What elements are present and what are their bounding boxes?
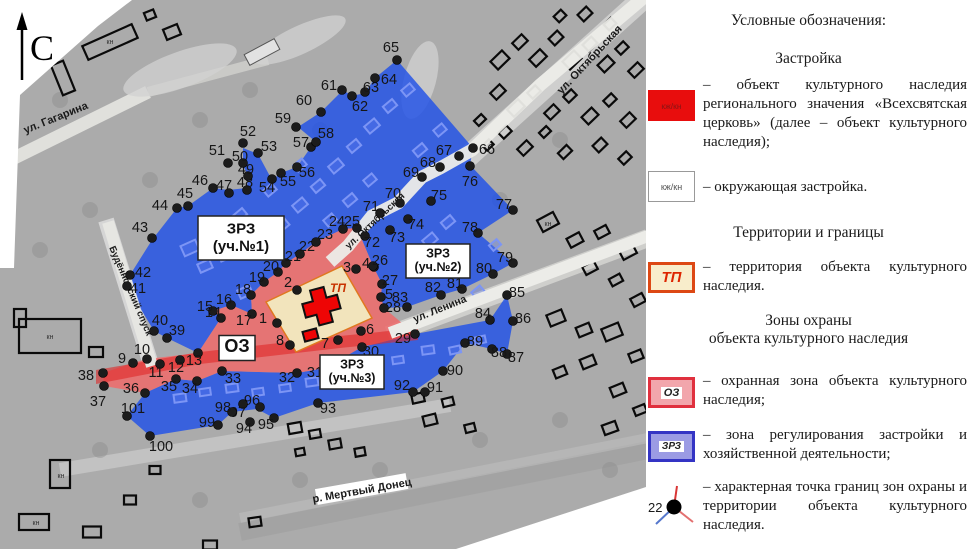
boundary-point-number: 92 bbox=[394, 378, 410, 394]
boundary-point-number: 43 bbox=[132, 220, 148, 236]
boundary-point-number: 79 bbox=[497, 250, 513, 266]
boundary-point-number: 3 bbox=[343, 260, 351, 276]
boundary-point-number: 40 bbox=[152, 313, 168, 329]
vegetation bbox=[142, 172, 158, 188]
vegetation bbox=[292, 472, 308, 488]
boundary-point-number: 12 bbox=[168, 360, 184, 376]
point-dot bbox=[667, 500, 682, 515]
boundary-point-number: 70 bbox=[385, 186, 401, 202]
swatch-label: ТП bbox=[662, 269, 682, 286]
boundary-point-number: 71 bbox=[363, 199, 379, 215]
boundary-point-number: 84 bbox=[475, 306, 491, 322]
zone-label-text: ЗРЗ bbox=[340, 358, 364, 372]
point-number: 22 bbox=[648, 500, 662, 515]
boundary-point-number: 99 bbox=[199, 415, 215, 431]
boundary-point-number: 24 bbox=[329, 214, 345, 230]
boundary-point-number: 76 bbox=[462, 174, 478, 190]
boundary-point-number: 57 bbox=[293, 135, 309, 151]
vegetation bbox=[472, 432, 488, 448]
boundary-point-number: 52 bbox=[240, 124, 256, 140]
swatch-label: ЗРЗ bbox=[659, 441, 684, 452]
boundary-point-number: 38 bbox=[78, 368, 94, 384]
boundary-point-number: 35 bbox=[161, 379, 177, 395]
boundary-point-number: 80 bbox=[476, 261, 492, 277]
boundary-point-number: 27 bbox=[382, 273, 398, 289]
boundary-point-number: 62 bbox=[352, 99, 368, 115]
boundary-point-number: 16 bbox=[216, 292, 232, 308]
building-type-label: кн bbox=[107, 39, 114, 46]
boundary-point-dot bbox=[100, 382, 109, 391]
boundary-point-number: 66 bbox=[479, 142, 495, 158]
boundary-point-number: 83 bbox=[392, 290, 408, 306]
building-type-label: кн bbox=[33, 520, 40, 527]
legend-section-heading-zastroika: Застройка bbox=[646, 50, 971, 68]
zone-label-text: ЗРЗ bbox=[426, 247, 450, 261]
zone-label-text: (уч.№1) bbox=[213, 238, 269, 255]
boundary-point-number: 44 bbox=[152, 198, 168, 214]
boundary-point-dot bbox=[334, 336, 343, 345]
boundary-point-dot bbox=[411, 330, 420, 339]
vegetation bbox=[372, 462, 388, 478]
boundary-point-number: 7 bbox=[321, 336, 329, 352]
zrz-zone-swatch: ЗРЗ bbox=[648, 431, 695, 462]
boundary-point-number: 47 bbox=[216, 178, 232, 194]
building-type-label: кн bbox=[47, 334, 54, 341]
boundary-point-number: 61 bbox=[321, 78, 337, 94]
boundary-point-dot bbox=[352, 265, 361, 274]
boundary-point-number: 98 bbox=[215, 400, 231, 416]
boundary-point-number: 94 bbox=[236, 421, 252, 437]
building-in-zone bbox=[392, 356, 404, 364]
vegetation bbox=[32, 242, 48, 258]
boundary-point-number: 86 bbox=[515, 311, 531, 327]
boundary-point-number: 85 bbox=[509, 285, 525, 301]
legend-item-text: – объект культурного наследия региональн… bbox=[703, 76, 967, 152]
boundary-point-number: 60 bbox=[296, 93, 312, 109]
heritage-object-swatch: кж/кн bbox=[648, 90, 695, 121]
boundary-point-number: 33 bbox=[225, 371, 241, 387]
boundary-point-dot bbox=[224, 159, 233, 168]
boundary-point-number: 53 bbox=[261, 139, 277, 155]
map-canvas: ул. Гагаринаул. Октябрьскаяул. Октябрьск… bbox=[0, 0, 646, 549]
boundary-point-number: 51 bbox=[209, 143, 225, 159]
oz-zone-swatch: ОЗ bbox=[648, 377, 695, 408]
boundary-point-number: 72 bbox=[364, 235, 380, 251]
boundary-point-number: 65 bbox=[383, 40, 399, 56]
boundary-point-dot bbox=[466, 162, 475, 171]
boundary-point-dot bbox=[357, 327, 366, 336]
boundary-point-number: 9 bbox=[118, 351, 126, 367]
boundary-point-dot bbox=[286, 341, 295, 350]
swatch-label: кж/кн bbox=[661, 182, 682, 192]
boundary-point-number: 55 bbox=[280, 174, 296, 190]
vegetation bbox=[192, 112, 208, 128]
boundary-point-number: 42 bbox=[135, 265, 151, 281]
boundary-point-number: 87 bbox=[508, 350, 524, 366]
boundary-point-number: 89 bbox=[467, 334, 483, 350]
boundary-point-number: 25 bbox=[344, 214, 360, 230]
boundary-point-number: 73 bbox=[389, 230, 405, 246]
legend-item-text: – зона регулирования застройки и хозяйст… bbox=[703, 426, 967, 464]
boundary-point-number: 88 bbox=[491, 345, 507, 361]
boundary-point-number: 67 bbox=[436, 143, 452, 159]
boundary-point-number: 54 bbox=[259, 180, 275, 196]
boundary-point-number: 93 bbox=[320, 401, 336, 417]
building-in-zone bbox=[199, 388, 211, 396]
boundary-point-number: 26 bbox=[372, 253, 388, 269]
boundary-point-dot bbox=[436, 163, 445, 172]
boundary-point-dot bbox=[173, 204, 182, 213]
boundary-point-dot bbox=[129, 359, 138, 368]
boundary-point-dot bbox=[338, 86, 347, 95]
vegetation bbox=[552, 412, 568, 428]
boundary-point-dot bbox=[148, 234, 157, 243]
map-content: ул. Гагаринаул. Октябрьскаяул. Октябрьск… bbox=[0, 0, 646, 549]
legend-item-text: – территория объекта культурного наследи… bbox=[703, 258, 967, 296]
boundary-point-number: 69 bbox=[403, 165, 419, 181]
north-label: С bbox=[30, 28, 54, 68]
legend-panel: Условные обозначения: Застройка кж/кн – … bbox=[646, 0, 971, 549]
boundary-point-number: 82 bbox=[425, 280, 441, 296]
boundary-point-number: 34 bbox=[182, 381, 198, 397]
vegetation bbox=[242, 82, 258, 98]
boundary-point-dot bbox=[455, 152, 464, 161]
boundary-point-dot bbox=[371, 74, 380, 83]
boundary-point-number: 78 bbox=[462, 220, 478, 236]
boundary-point-number: 95 bbox=[258, 417, 274, 433]
boundary-point-dot bbox=[273, 319, 282, 328]
boundary-point-number: 74 bbox=[408, 217, 424, 233]
boundary-point-number: 15 bbox=[197, 299, 213, 315]
zone-label-text: (уч.№3) bbox=[329, 371, 376, 385]
building-in-zone bbox=[449, 345, 461, 354]
surrounding-buildings-swatch: кж/кн bbox=[648, 171, 695, 202]
boundary-point-number: 101 bbox=[121, 401, 145, 417]
zone-label-text: ОЗ bbox=[224, 336, 249, 356]
vegetation bbox=[82, 202, 98, 218]
boundary-point-number: 56 bbox=[299, 165, 315, 181]
boundary-point-number: 17 bbox=[236, 313, 252, 329]
territory-swatch: ТП bbox=[648, 262, 695, 293]
zone-label-text: (уч.№2) bbox=[415, 260, 462, 274]
legend-title: Условные обозначения: bbox=[646, 12, 971, 30]
vegetation bbox=[192, 492, 208, 508]
boundary-point-number: 68 bbox=[420, 155, 436, 171]
legend-item-text: – охранная зона объекта культурного насл… bbox=[703, 372, 967, 410]
legend-item-text: – окружающая застройка. bbox=[703, 178, 967, 197]
boundary-point-number: 90 bbox=[447, 363, 463, 379]
zone-label-text: ЗРЗ bbox=[227, 221, 256, 238]
vegetation bbox=[92, 442, 108, 458]
boundary-point-number: 75 bbox=[431, 188, 447, 204]
building-type-label: кн bbox=[58, 473, 65, 480]
building-in-zone bbox=[422, 345, 435, 355]
legend-item-text: – характерная точка границ зон охраны и … bbox=[703, 478, 967, 535]
boundary-point-number: 50 bbox=[232, 149, 248, 165]
boundary-point-number: 2 bbox=[284, 275, 292, 291]
boundary-point-number: 46 bbox=[192, 173, 208, 189]
boundary-point-number: 32 bbox=[279, 370, 295, 386]
boundary-point-number: 36 bbox=[123, 381, 139, 397]
boundary-point-dot bbox=[293, 286, 302, 295]
boundary-point-number: 91 bbox=[427, 380, 443, 396]
heritage-zones-map-page: ул. Гагаринаул. Октябрьскаяул. Октябрьск… bbox=[0, 0, 971, 549]
boundary-point-number: 6 bbox=[366, 322, 374, 338]
boundary-point-number: 37 bbox=[90, 394, 106, 410]
boundary-point-dot bbox=[99, 369, 108, 378]
boundary-point-number: 100 bbox=[149, 439, 173, 455]
boundary-point-dot bbox=[292, 123, 301, 132]
swatch-label: кж/кн bbox=[661, 101, 681, 111]
swatch-label: ОЗ bbox=[661, 387, 683, 399]
boundary-point-number: 10 bbox=[134, 342, 150, 358]
boundary-point-number: 59 bbox=[275, 111, 291, 127]
vegetation bbox=[602, 462, 618, 478]
boundary-point-number: 41 bbox=[130, 281, 146, 297]
boundary-point-number: 1 bbox=[259, 311, 267, 327]
boundary-point-number: 20 bbox=[263, 259, 279, 275]
legend-section-heading-zones: Зоны охраны объекта культурного наследия bbox=[646, 312, 971, 348]
boundary-point-number: 8 bbox=[276, 333, 284, 349]
boundary-point-number: 29 bbox=[395, 331, 411, 347]
boundary-point-dot bbox=[141, 389, 150, 398]
boundary-point-dot bbox=[184, 202, 193, 211]
boundary-point-number: 13 bbox=[186, 353, 202, 369]
boundary-point-dot bbox=[126, 271, 135, 280]
building-type-label: кн bbox=[545, 221, 552, 228]
boundary-point-number: 39 bbox=[169, 323, 185, 339]
territory-tp-label: ТП bbox=[330, 281, 346, 295]
boundary-point-number: 45 bbox=[177, 186, 193, 202]
characteristic-point-symbol: 22 bbox=[646, 483, 698, 529]
legend-section-heading-territories: Территории и границы bbox=[646, 224, 971, 242]
boundary-point-number: 58 bbox=[318, 126, 334, 142]
boundary-point-dot bbox=[469, 144, 478, 153]
boundary-point-number: 77 bbox=[496, 197, 512, 213]
boundary-point-number: 64 bbox=[381, 72, 397, 88]
boundary-point-dot bbox=[393, 56, 402, 65]
boundary-point-dot bbox=[317, 108, 326, 117]
